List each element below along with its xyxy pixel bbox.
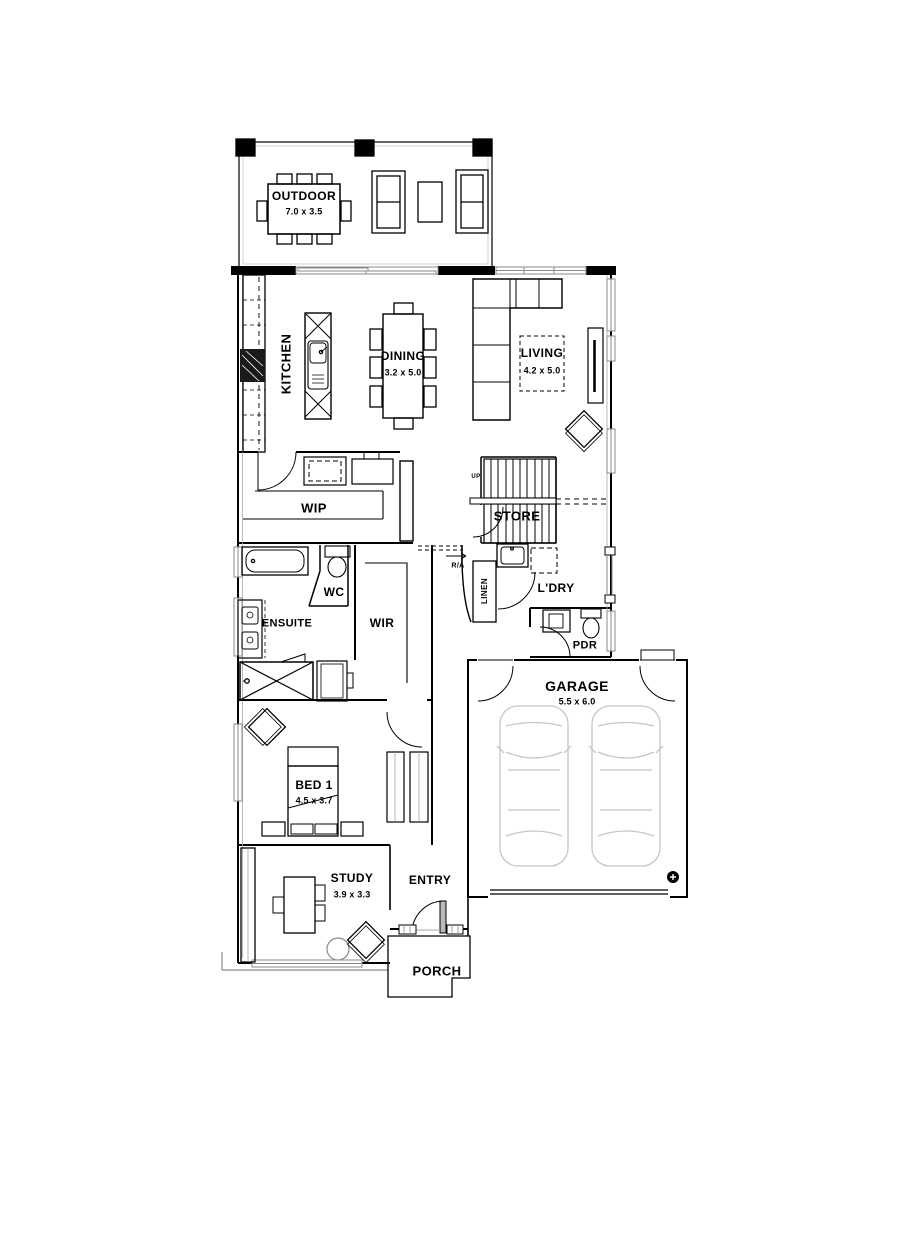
- stairs-up-label: UP: [471, 474, 480, 480]
- column: [473, 139, 492, 156]
- staircase: [470, 459, 608, 543]
- outdoor-sofas: [372, 170, 488, 233]
- powder-room-label: PDR: [573, 641, 597, 652]
- window: [496, 267, 586, 274]
- laundry-room-label: L'DRY: [537, 582, 574, 594]
- shower: [240, 654, 313, 700]
- entry-fixtures: [388, 901, 470, 997]
- toilet-wc: [325, 546, 350, 577]
- study-dims-label: 3.9 x 3.3: [334, 891, 371, 900]
- store-room-label: STORE: [494, 510, 541, 523]
- return-air-label: R/A: [451, 563, 464, 570]
- laundry-door-arc: [498, 572, 535, 609]
- living-room-label: LIVING: [521, 347, 563, 359]
- entry-room-label: ENTRY: [409, 874, 451, 886]
- return-air-marks: [418, 546, 466, 559]
- linen-room-label: LINEN: [481, 578, 489, 604]
- dining-room-label: DINING: [381, 350, 425, 362]
- study-armchair: [345, 922, 386, 963]
- bedside-table: [341, 822, 363, 836]
- outdoor-room-label: OUTDOOR: [272, 190, 336, 202]
- outdoor-dims-label: 7.0 x 3.5: [286, 208, 323, 217]
- porch-room-label: PORCH: [413, 965, 462, 978]
- column: [236, 139, 255, 156]
- sliding-door: [296, 267, 438, 274]
- wip-fixtures: [243, 452, 413, 541]
- front-door-leaf: [440, 901, 446, 933]
- garage-rear-door-arc: [640, 666, 675, 701]
- garage-room-label: GARAGE: [545, 679, 609, 693]
- round-chair: [327, 938, 349, 960]
- front-door-arc: [412, 901, 444, 933]
- wip-door-arc: [258, 452, 296, 490]
- bed1-dims-label: 4.5 x 3.7: [296, 797, 333, 806]
- washer-space: [531, 548, 557, 573]
- car: [497, 706, 571, 866]
- dining-table: [370, 303, 436, 429]
- robe: [387, 752, 404, 822]
- garage-dims-label: 5.5 x 6.0: [559, 698, 596, 707]
- column: [355, 140, 374, 156]
- side-table: [563, 411, 604, 452]
- armchair: [244, 706, 285, 747]
- living-label-box: [520, 336, 564, 391]
- ensuite-room-label: ENSUITE: [262, 619, 312, 630]
- living-dims-label: 4.2 x 5.0: [524, 367, 561, 376]
- cars: [497, 706, 663, 866]
- car: [589, 706, 663, 866]
- appliance: [352, 459, 393, 484]
- stair-landing: [470, 498, 556, 504]
- study-furniture: [222, 848, 388, 970]
- bed1-door-arc: [387, 712, 422, 747]
- cabinet: [317, 661, 353, 701]
- tv-unit: [588, 328, 603, 403]
- garage-entry-door-arc: [478, 666, 513, 701]
- wir-room-label: WIR: [370, 617, 395, 629]
- island-bench: [305, 313, 331, 419]
- bed1-furniture: [244, 706, 428, 836]
- bed1-room-label: BED 1: [295, 779, 332, 791]
- floor-plan: OUTDOOR 7.0 x 3.5 KITCHEN DINING 3.2 x 5…: [0, 0, 901, 1246]
- top-wall: [231, 266, 616, 275]
- hall-cupboard: [400, 461, 413, 541]
- study-room-label: STUDY: [331, 872, 374, 884]
- bedside-table: [262, 822, 285, 836]
- desk: [284, 877, 315, 933]
- outdoor-area: [236, 139, 492, 268]
- kitchen-room-label: KITCHEN: [280, 334, 293, 395]
- wip-room-label: WIP: [301, 502, 327, 515]
- wc-room-label: WC: [324, 586, 345, 598]
- floor-plan-linework: [0, 0, 901, 1246]
- dining-dims-label: 3.2 x 5.0: [385, 369, 422, 378]
